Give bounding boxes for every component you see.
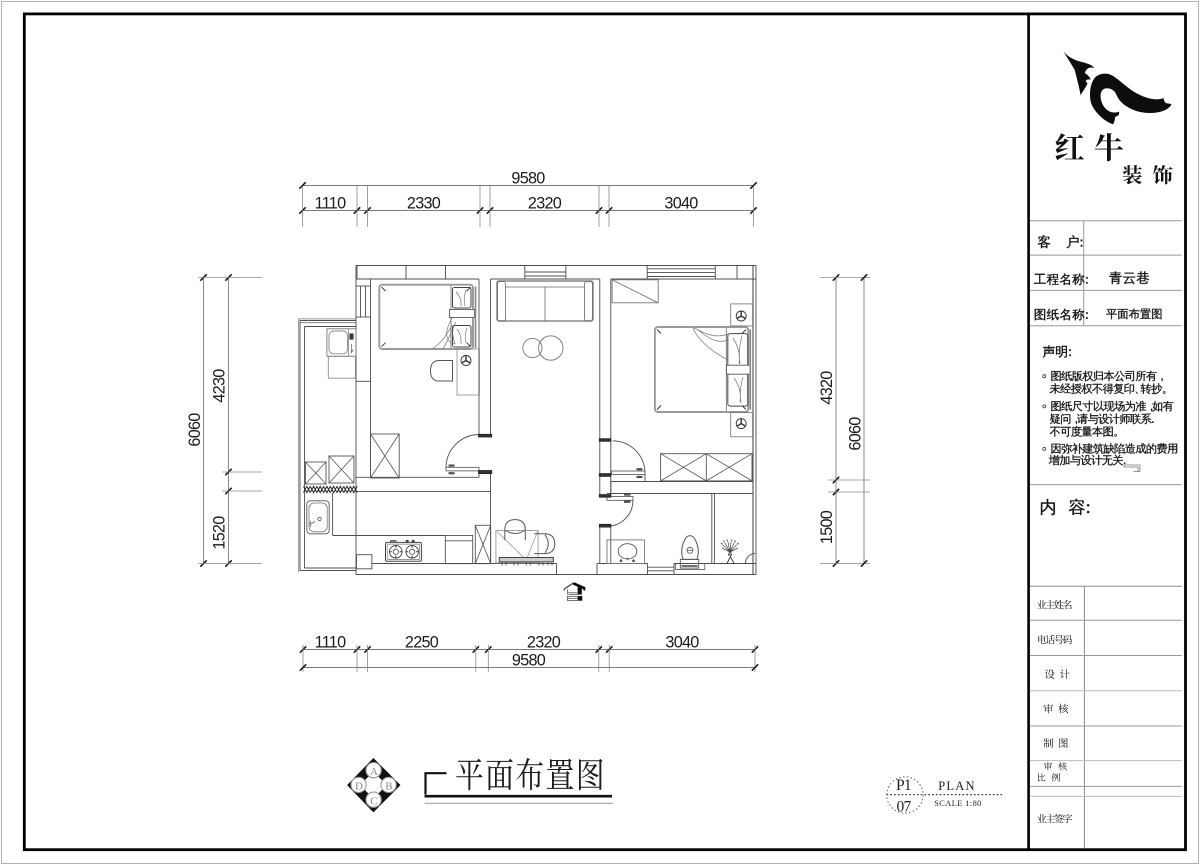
svg-text:2320: 2320 <box>528 194 562 212</box>
svg-text:SCALE 1:80: SCALE 1:80 <box>934 799 982 808</box>
svg-text:4320: 4320 <box>818 371 836 405</box>
svg-text:PLAN: PLAN <box>938 779 975 793</box>
svg-text:07: 07 <box>896 799 911 816</box>
svg-text:9580: 9580 <box>511 169 545 187</box>
svg-text:B: B <box>385 781 392 793</box>
svg-text:1500: 1500 <box>818 510 836 544</box>
svg-text:1520: 1520 <box>211 516 229 550</box>
svg-text:1110: 1110 <box>315 194 347 212</box>
svg-text:A: A <box>370 766 378 778</box>
svg-text:6060: 6060 <box>847 417 865 451</box>
svg-text:2320: 2320 <box>527 634 561 652</box>
svg-text:2330: 2330 <box>407 194 441 212</box>
svg-text:C: C <box>370 795 377 807</box>
svg-text:3040: 3040 <box>665 634 699 652</box>
svg-text:1110: 1110 <box>315 634 347 652</box>
svg-text:9580: 9580 <box>512 651 546 669</box>
svg-text:3040: 3040 <box>664 194 698 212</box>
svg-text:4230: 4230 <box>211 369 229 403</box>
svg-text:2250: 2250 <box>405 634 439 652</box>
svg-text:P1: P1 <box>896 777 911 794</box>
svg-text:D: D <box>355 781 363 793</box>
svg-text:6060: 6060 <box>186 413 204 447</box>
